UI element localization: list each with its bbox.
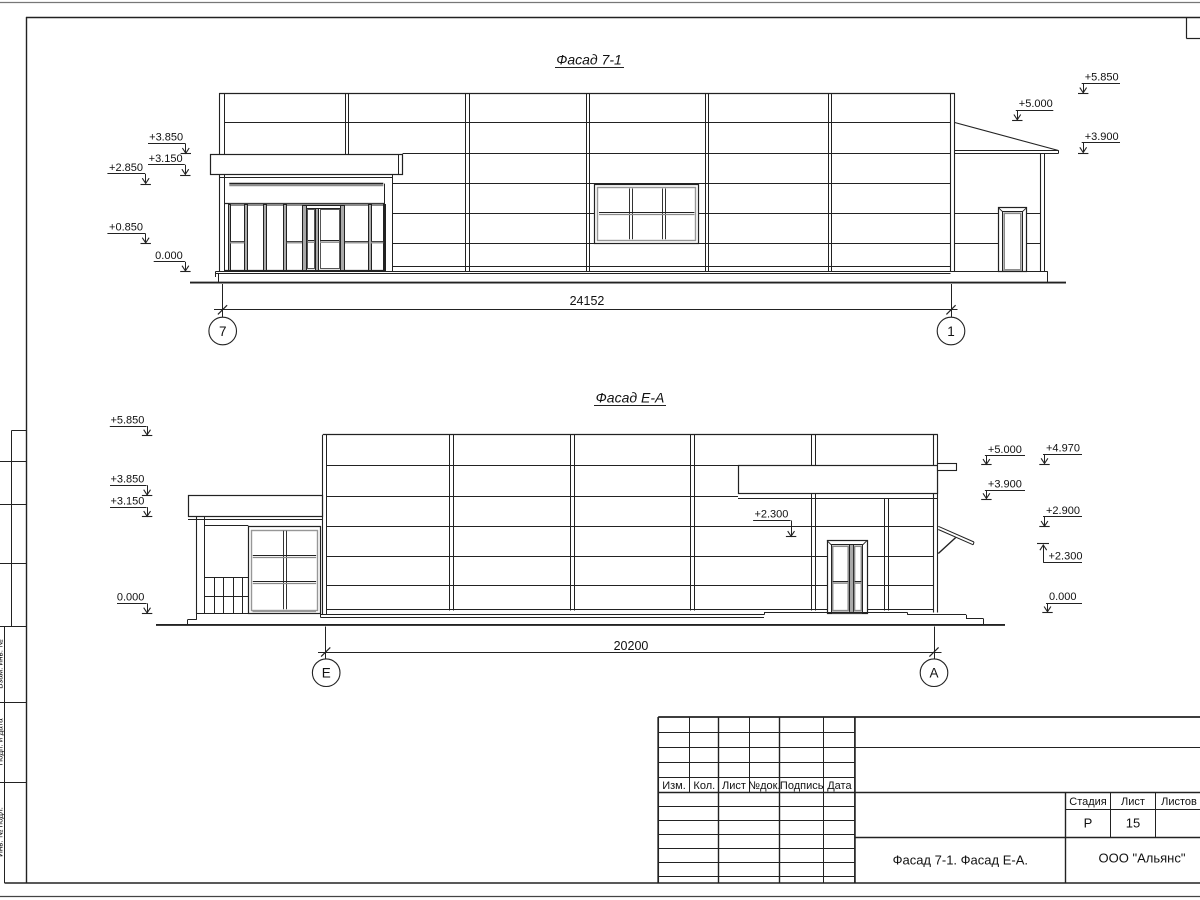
svg-text:+3.850: +3.850 [149,132,183,144]
svg-text:1: 1 [947,324,955,339]
svg-text:+0.850: +0.850 [109,222,143,234]
svg-text:Лист: Лист [1121,796,1145,808]
svg-text:+2.900: +2.900 [1046,505,1080,517]
svg-text:+3.900: +3.900 [988,479,1022,491]
svg-text:А: А [929,666,938,681]
svg-text:+5.850: +5.850 [1085,72,1119,84]
svg-text:0.000: 0.000 [155,250,183,262]
svg-text:Инв. № подл.: Инв. № подл. [0,807,4,857]
svg-text:Кол.: Кол. [693,780,715,792]
svg-text:+5.000: +5.000 [988,444,1022,456]
svg-text:+3.900: +3.900 [1085,131,1119,143]
svg-text:+2.850: +2.850 [109,162,143,174]
svg-text:+2.300: +2.300 [754,509,788,521]
svg-text:+3.850: +3.850 [110,474,144,486]
svg-text:15: 15 [1126,816,1140,831]
svg-text:Фасад 7-1. Фасад Е-А.: Фасад 7-1. Фасад Е-А. [893,853,1028,868]
svg-text:7: 7 [219,324,227,339]
svg-text:+3.150: +3.150 [149,153,183,165]
svg-text:Фасад 7-1: Фасад 7-1 [556,52,622,68]
svg-text:Изм.: Изм. [662,780,686,792]
svg-text:ООО "Альянс": ООО "Альянс" [1099,851,1186,866]
svg-text:Подп. и дата: Подп. и дата [0,718,4,766]
svg-text:20200: 20200 [614,639,649,653]
svg-text:Фасад Е-А: Фасад Е-А [596,389,665,405]
svg-text:Р: Р [1084,816,1093,831]
svg-text:Подпись: Подпись [780,780,824,792]
svg-text:Стадия: Стадия [1069,796,1107,808]
svg-text:№док.: №док. [748,780,780,792]
svg-text:+2.300: +2.300 [1049,550,1083,562]
svg-text:+4.970: +4.970 [1046,443,1080,455]
svg-text:24152: 24152 [570,294,605,308]
svg-text:+3.150: +3.150 [110,495,144,507]
svg-text:0.000: 0.000 [117,592,145,604]
svg-text:Е: Е [322,666,331,681]
svg-text:Дата: Дата [827,780,852,792]
svg-text:0.000: 0.000 [1049,591,1077,603]
svg-text:Лист: Лист [722,780,746,792]
svg-text:Листов: Листов [1161,796,1197,808]
svg-text:+5.850: +5.850 [110,414,144,426]
svg-text:+5.000: +5.000 [1019,98,1053,110]
svg-text:Взам. инв. №: Взам. инв. № [0,639,4,689]
